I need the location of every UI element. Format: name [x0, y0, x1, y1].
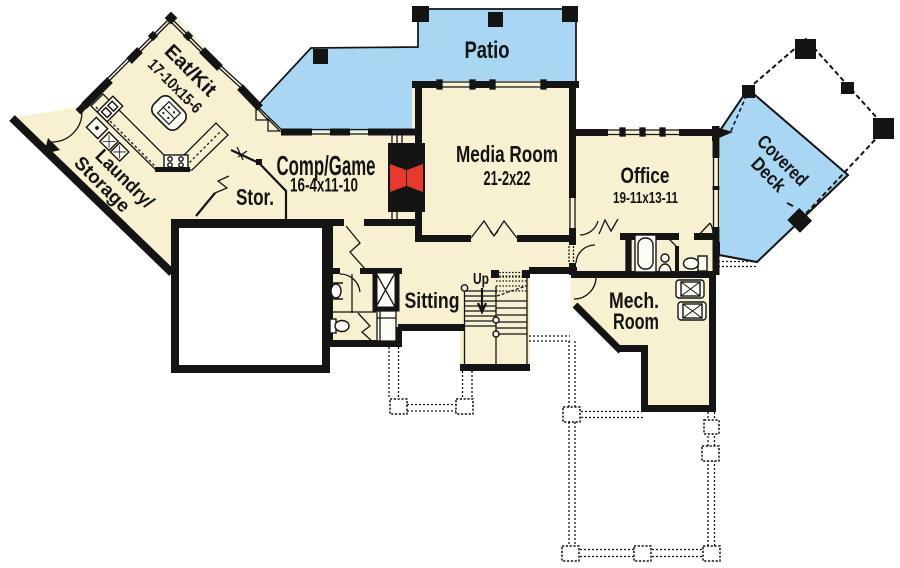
svg-text:Stor.: Stor. [236, 184, 274, 210]
svg-text:Patio: Patio [465, 37, 510, 64]
svg-text:Media Room: Media Room [456, 141, 558, 167]
svg-text:Sitting: Sitting [405, 288, 460, 313]
svg-text:19-11x13-11: 19-11x13-11 [613, 190, 678, 207]
svg-text:16-4x11-10: 16-4x11-10 [290, 176, 358, 197]
svg-text:Office: Office [621, 163, 670, 188]
svg-text:Up: Up [473, 271, 489, 288]
svg-text:Room: Room [613, 309, 659, 334]
svg-text:21-2x22: 21-2x22 [484, 168, 531, 190]
